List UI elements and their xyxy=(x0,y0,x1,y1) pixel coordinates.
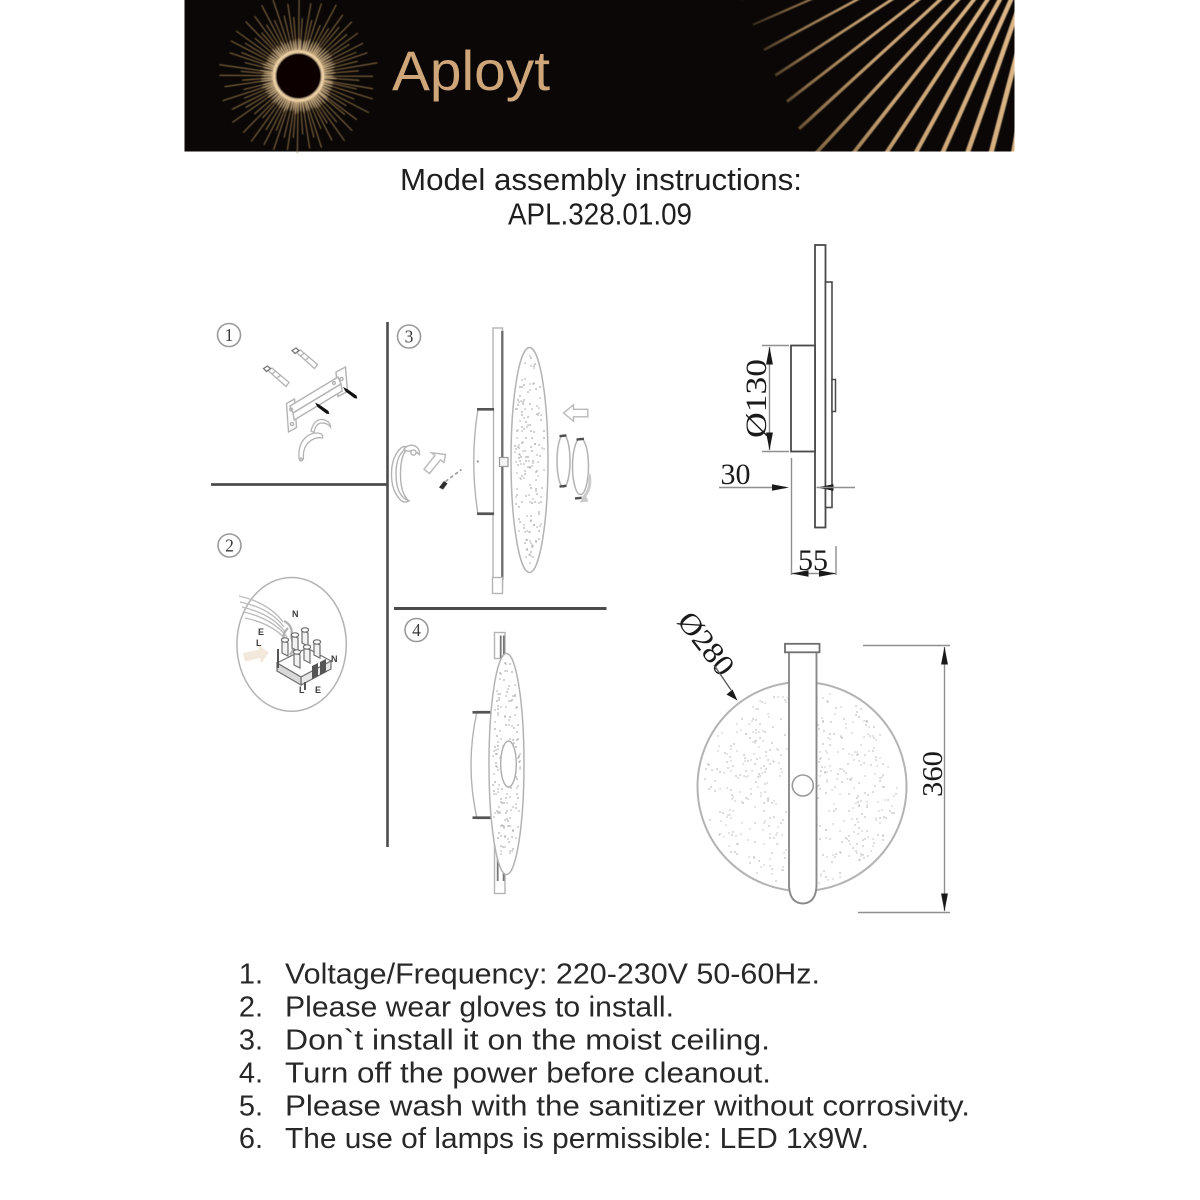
svg-text:55: 55 xyxy=(798,544,828,577)
svg-text:2.: 2. xyxy=(239,992,263,1024)
svg-text:The use of lamps is permissibl: The use of lamps is permissible: LED 1x9… xyxy=(285,1123,869,1155)
svg-text:Turn off the power before clea: Turn off the power before cleanout. xyxy=(285,1057,771,1089)
svg-text:N: N xyxy=(331,654,338,664)
svg-text:3.: 3. xyxy=(239,1025,263,1057)
svg-text:Please wear gloves to install.: Please wear gloves to install. xyxy=(285,992,674,1024)
svg-text:L: L xyxy=(299,685,305,695)
svg-text:E: E xyxy=(258,627,264,637)
svg-text:Model assembly instructions:: Model assembly instructions: xyxy=(400,162,802,197)
svg-text:Don`t install it on the moist: Don`t install it on the moist ceiling. xyxy=(285,1025,770,1057)
svg-text:APL.328.01.09: APL.328.01.09 xyxy=(508,197,692,232)
svg-text:1.: 1. xyxy=(239,959,263,991)
svg-text:4: 4 xyxy=(412,620,421,640)
svg-text:E: E xyxy=(315,685,321,695)
svg-text:Please wash with the sanitizer: Please wash with the sanitizer without c… xyxy=(285,1090,970,1122)
svg-text:1: 1 xyxy=(225,325,234,345)
svg-text:3: 3 xyxy=(405,327,414,347)
svg-text:360: 360 xyxy=(917,751,949,797)
svg-text:Aployt: Aployt xyxy=(392,39,550,102)
svg-text:5.: 5. xyxy=(239,1090,263,1122)
svg-text:30: 30 xyxy=(721,458,751,491)
svg-text:L: L xyxy=(256,638,262,648)
svg-text:N: N xyxy=(292,609,299,619)
svg-text:Ø130: Ø130 xyxy=(740,359,773,438)
svg-text:Ø280: Ø280 xyxy=(671,605,741,682)
svg-text:6.: 6. xyxy=(239,1123,263,1155)
svg-text:2: 2 xyxy=(225,536,234,556)
svg-text:Voltage/Frequency: 220-230V 50: Voltage/Frequency: 220-230V 50-60Hz. xyxy=(285,959,820,991)
svg-text:4.: 4. xyxy=(239,1057,263,1089)
